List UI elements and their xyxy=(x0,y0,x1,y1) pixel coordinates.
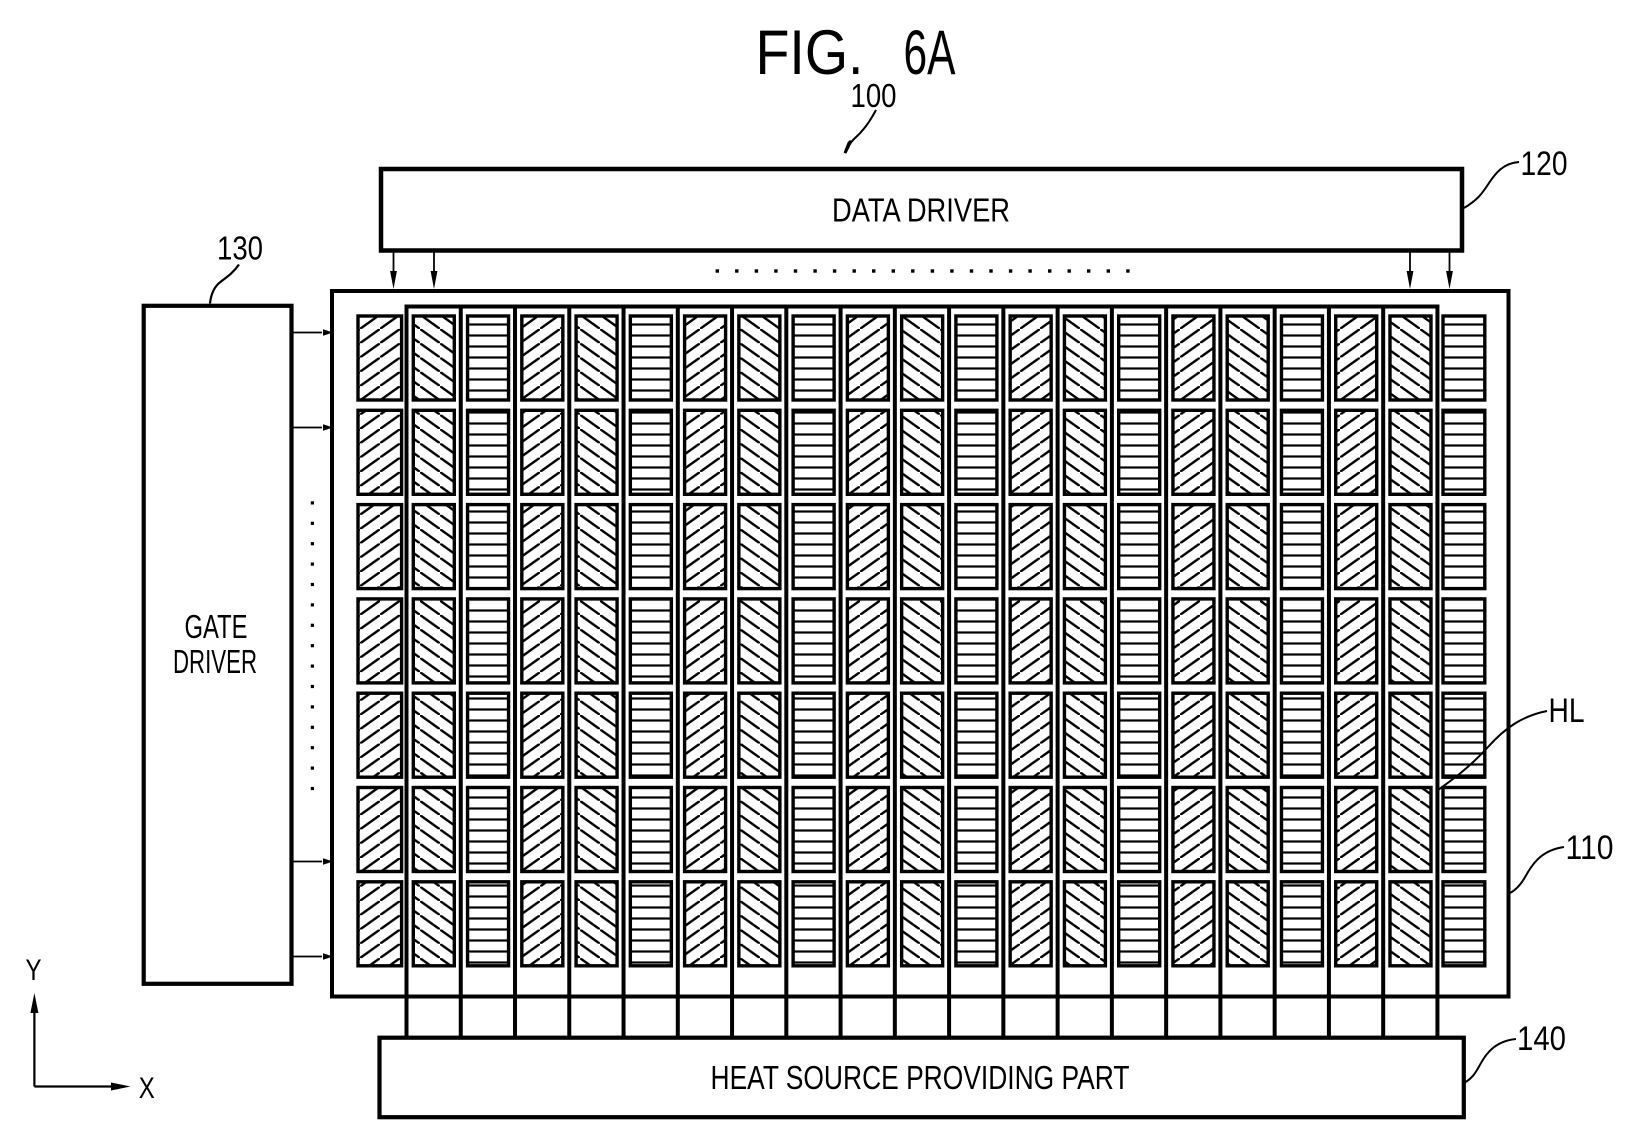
svg-text:6A: 6A xyxy=(904,18,956,88)
svg-text:DATA DRIVER: DATA DRIVER xyxy=(832,192,1010,229)
svg-text:FIG.: FIG. xyxy=(756,18,864,88)
svg-text:130: 130 xyxy=(217,230,263,267)
svg-text:100: 100 xyxy=(851,77,897,114)
svg-text:Y: Y xyxy=(26,954,42,987)
svg-text:140: 140 xyxy=(1517,1020,1566,1058)
svg-text:GATE: GATE xyxy=(185,608,248,645)
svg-text:X: X xyxy=(139,1072,155,1105)
svg-text:120: 120 xyxy=(1521,145,1568,183)
svg-text:HEAT SOURCE PROVIDING PART: HEAT SOURCE PROVIDING PART xyxy=(711,1059,1130,1096)
svg-text:110: 110 xyxy=(1566,829,1614,867)
svg-text:DRIVER: DRIVER xyxy=(173,643,257,680)
svg-text:HL: HL xyxy=(1549,692,1585,730)
